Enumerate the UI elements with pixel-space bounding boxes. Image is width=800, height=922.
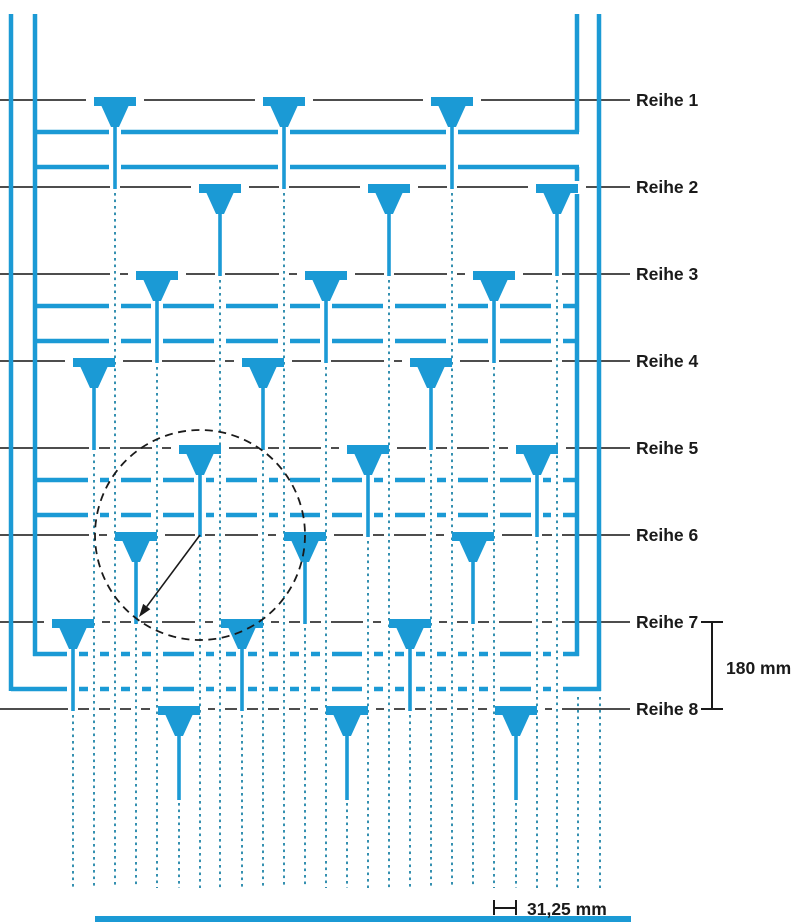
nozzle-taper <box>354 453 382 475</box>
nozzle-head <box>73 358 115 367</box>
nozzle-head <box>179 445 221 454</box>
nozzle-head <box>473 271 515 280</box>
nozzle-head <box>115 532 157 541</box>
nozzle <box>326 706 368 800</box>
dim-row-spacing: 180 mm <box>701 622 791 709</box>
nozzle-taper <box>438 105 466 127</box>
nozzle-taper <box>122 540 150 562</box>
nozzle-taper <box>291 540 319 562</box>
nozzle <box>199 184 241 276</box>
row-label: Reihe 8 <box>636 699 699 719</box>
nozzle-taper <box>101 105 129 127</box>
nozzle <box>263 97 305 189</box>
nozzle-head <box>536 184 578 193</box>
nozzle <box>452 532 494 624</box>
dim-label-3125mm: 31,25 mm <box>527 899 607 919</box>
nozzle <box>305 271 347 363</box>
nozzle-taper <box>375 192 403 214</box>
nozzle-taper <box>523 453 551 475</box>
nozzle-taper <box>543 192 571 214</box>
nozzle <box>410 358 452 450</box>
nozzle-taper <box>249 366 277 388</box>
nozzle-taper <box>59 627 87 649</box>
spray-nozzle-diagram: 180 mm31,25 mmReihe 1Reihe 2Reihe 3Reihe… <box>0 0 800 922</box>
row-label: Reihe 5 <box>636 438 699 458</box>
nozzle <box>136 271 178 363</box>
nozzle-head <box>368 184 410 193</box>
nozzle <box>536 184 578 276</box>
nozzle-head <box>347 445 389 454</box>
nozzle-head <box>495 706 537 715</box>
nozzle <box>115 532 157 624</box>
dim-label-180mm: 180 mm <box>726 658 791 678</box>
row-label: Reihe 3 <box>636 264 699 284</box>
nozzle <box>516 445 558 537</box>
nozzle-head <box>158 706 200 715</box>
nozzle-head <box>242 358 284 367</box>
nozzle <box>473 271 515 363</box>
nozzle <box>73 358 115 450</box>
nozzle-taper <box>417 366 445 388</box>
row-label: Reihe 6 <box>636 525 699 545</box>
nozzle-taper <box>228 627 256 649</box>
nozzle-taper <box>480 279 508 301</box>
nozzle-taper <box>312 279 340 301</box>
nozzle-head <box>452 532 494 541</box>
nozzle <box>179 445 221 537</box>
nozzle <box>158 706 200 800</box>
nozzle <box>52 619 94 711</box>
nozzle-taper <box>165 714 193 736</box>
nozzle-head <box>326 706 368 715</box>
nozzle-taper <box>143 279 171 301</box>
diagram-canvas: 180 mm31,25 mmReihe 1Reihe 2Reihe 3Reihe… <box>0 0 800 922</box>
nozzle <box>242 358 284 450</box>
nozzle <box>431 97 473 189</box>
nozzle-taper <box>396 627 424 649</box>
nozzle-taper <box>80 366 108 388</box>
offset-arrow-shaft <box>147 535 200 607</box>
nozzle <box>389 619 431 711</box>
nozzle-head <box>221 619 263 628</box>
nozzle-head <box>136 271 178 280</box>
nozzle-head <box>389 619 431 628</box>
nozzle <box>94 97 136 189</box>
nozzle-head <box>431 97 473 106</box>
nozzle-taper <box>186 453 214 475</box>
nozzle <box>495 706 537 800</box>
nozzle <box>347 445 389 537</box>
nozzle-taper <box>333 714 361 736</box>
nozzle <box>368 184 410 276</box>
row-labels-layer: Reihe 1Reihe 2Reihe 3Reihe 4Reihe 5Reihe… <box>636 90 699 719</box>
arrowhead-icon <box>139 604 150 617</box>
nozzle-head <box>410 358 452 367</box>
row-label: Reihe 4 <box>636 351 699 371</box>
nozzle-head <box>52 619 94 628</box>
nozzle-head <box>305 271 347 280</box>
row-label: Reihe 7 <box>636 612 698 632</box>
nozzle-taper <box>206 192 234 214</box>
row-label: Reihe 1 <box>636 90 699 110</box>
nozzle-head <box>199 184 241 193</box>
nozzle-head <box>516 445 558 454</box>
nozzle-taper <box>502 714 530 736</box>
nozzle-head <box>94 97 136 106</box>
nozzle-taper <box>459 540 487 562</box>
row-label: Reihe 2 <box>636 177 699 197</box>
nozzle-taper <box>270 105 298 127</box>
nozzle <box>284 532 326 624</box>
nozzle <box>221 619 263 711</box>
nozzle-head <box>263 97 305 106</box>
